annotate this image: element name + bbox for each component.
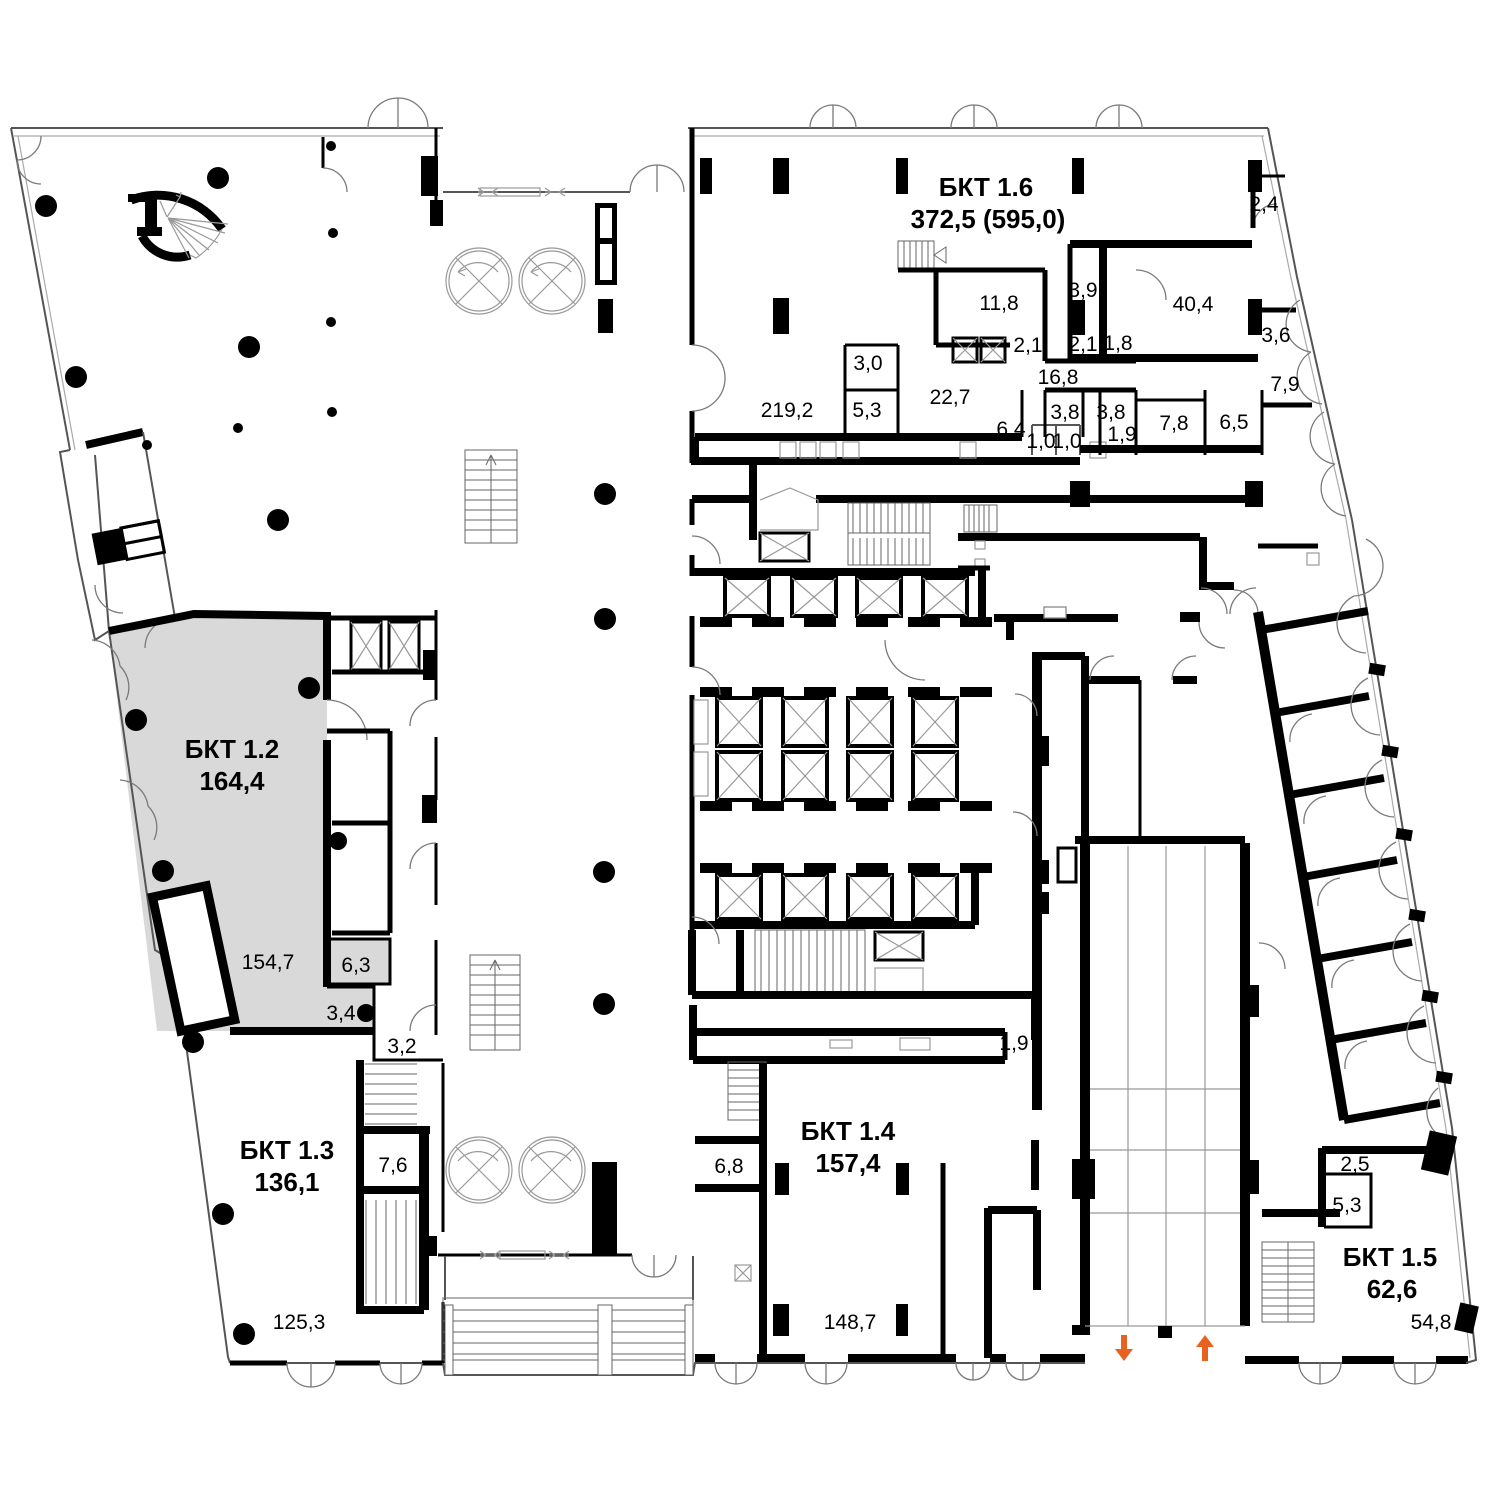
svg-text:2,1: 2,1: [1013, 334, 1042, 357]
svg-text:154,7: 154,7: [242, 951, 295, 974]
svg-text:6,3: 6,3: [341, 954, 370, 977]
svg-text:2,5: 2,5: [1340, 1153, 1369, 1176]
svg-text:6,4: 6,4: [996, 418, 1026, 441]
svg-text:2,4: 2,4: [1249, 193, 1279, 216]
svg-text:3,4: 3,4: [326, 1002, 356, 1025]
svg-text:3,0: 3,0: [853, 352, 882, 375]
svg-text:1,8: 1,8: [1103, 332, 1132, 355]
svg-text:3,8: 3,8: [1050, 401, 1079, 424]
svg-text:125,3: 125,3: [273, 1311, 326, 1334]
svg-text:7,8: 7,8: [1159, 412, 1188, 435]
svg-text:БКТ 1.4: БКТ 1.4: [801, 1116, 896, 1146]
svg-text:16,8: 16,8: [1038, 366, 1079, 389]
svg-text:2,1: 2,1: [1068, 333, 1097, 356]
svg-text:6,8: 6,8: [714, 1155, 743, 1178]
svg-text:5,3: 5,3: [1332, 1194, 1361, 1217]
svg-text:БКТ 1.2: БКТ 1.2: [185, 734, 279, 764]
svg-text:136,1: 136,1: [254, 1167, 319, 1197]
svg-text:БКТ 1.6: БКТ 1.6: [939, 172, 1033, 202]
svg-text:372,5 (595,0): 372,5 (595,0): [911, 204, 1066, 234]
svg-text:62,6: 62,6: [1367, 1274, 1418, 1304]
svg-text:1,9: 1,9: [999, 1032, 1028, 1055]
svg-text:40,4: 40,4: [1173, 293, 1214, 316]
svg-text:БКТ 1.5: БКТ 1.5: [1343, 1242, 1437, 1272]
svg-text:22,7: 22,7: [930, 386, 971, 409]
svg-text:157,4: 157,4: [815, 1148, 881, 1178]
svg-text:1,0: 1,0: [1026, 430, 1055, 453]
svg-text:1,9: 1,9: [1107, 423, 1136, 446]
svg-text:7,9: 7,9: [1270, 373, 1299, 396]
svg-text:148,7: 148,7: [824, 1311, 877, 1334]
svg-text:54,8: 54,8: [1411, 1311, 1452, 1334]
svg-text:219,2: 219,2: [761, 399, 814, 422]
svg-text:3,8: 3,8: [1096, 401, 1125, 424]
svg-text:1,0: 1,0: [1052, 430, 1081, 453]
svg-text:3,9: 3,9: [1068, 279, 1097, 302]
svg-text:БКТ 1.3: БКТ 1.3: [240, 1135, 334, 1165]
svg-text:3,2: 3,2: [387, 1035, 416, 1058]
svg-text:3,6: 3,6: [1261, 324, 1290, 347]
svg-text:11,8: 11,8: [979, 292, 1018, 315]
svg-text:6,5: 6,5: [1219, 411, 1248, 434]
svg-text:164,4: 164,4: [199, 766, 265, 796]
svg-text:7,6: 7,6: [378, 1154, 407, 1177]
svg-text:5,3: 5,3: [852, 399, 881, 422]
